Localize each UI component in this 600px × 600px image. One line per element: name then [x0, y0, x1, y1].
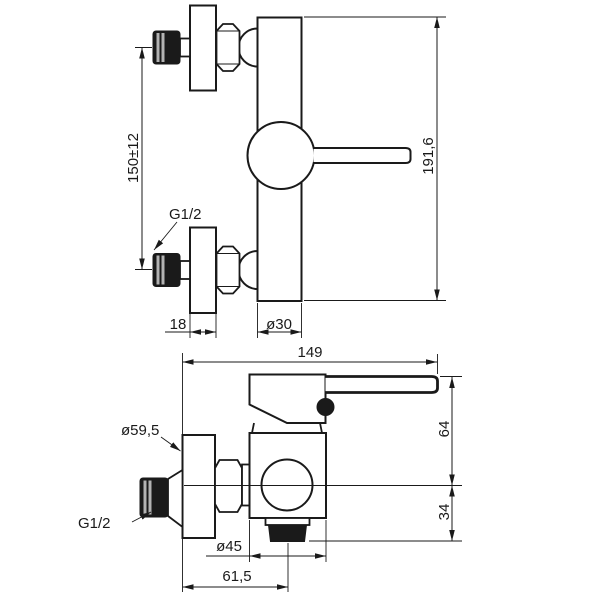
angled-connector — [168, 470, 183, 527]
diverter-knob-front — [262, 460, 313, 511]
nut-body-connector — [242, 465, 250, 506]
dim-inlet-spacing: 150±12 — [125, 133, 142, 183]
outlet-collar — [266, 518, 310, 525]
thread-stripe — [144, 481, 147, 515]
dim-outlet-below-center: 34 — [436, 504, 453, 521]
dim-overall-depth: 149 — [297, 344, 322, 361]
cartridge-housing-front — [250, 375, 326, 424]
cartridge-cap-side — [248, 122, 315, 189]
side-view: 150±12 191,6 G1/2 18 ø30 — [125, 6, 446, 339]
label-thread-front: G1/2 — [78, 515, 111, 532]
thread-stripe — [162, 33, 165, 62]
leader-thread-side — [154, 222, 177, 250]
lower-inlet-boss — [239, 251, 258, 289]
technical-drawing-page: 150±12 191,6 G1/2 18 ø30 — [0, 0, 600, 600]
dim-outlet-diameter: ø45 — [216, 538, 242, 555]
lever-pivot — [317, 399, 334, 416]
dim-flange-depth: 18 — [170, 316, 187, 333]
thread-stripe — [149, 481, 152, 515]
thread-stripe — [162, 256, 165, 285]
dim-total-height: 191,6 — [420, 137, 437, 175]
neck-line — [252, 423, 254, 433]
upper-wall-flange-side — [190, 6, 216, 91]
thread-stripe — [157, 256, 160, 285]
lever-handle-side — [314, 148, 411, 163]
dim-wall-to-outlet: 61,5 — [222, 568, 251, 585]
mixer-technical-drawing: 150±12 191,6 G1/2 18 ø30 — [0, 0, 600, 600]
hex-nut-front — [215, 460, 242, 512]
front-view: 149 64 34 ø45 61,5 ø59,5 G1/2 — [78, 344, 462, 592]
upper-stem — [180, 39, 190, 57]
leader-flange-diameter — [161, 437, 181, 451]
lever-handle-front — [326, 377, 438, 393]
dim-handle-above-center: 64 — [436, 421, 453, 438]
thread-stripe — [157, 33, 160, 62]
upper-inlet-boss — [239, 29, 258, 67]
label-thread-side: G1/2 — [169, 206, 202, 223]
neck-line — [320, 423, 322, 433]
lower-wall-flange-side — [190, 228, 216, 314]
label-flange-diameter: ø59,5 — [121, 422, 159, 439]
dim-body-diameter: ø30 — [266, 316, 292, 333]
wall-flange-front — [183, 435, 216, 538]
lower-stem — [180, 261, 190, 279]
outlet-thread — [269, 525, 307, 542]
